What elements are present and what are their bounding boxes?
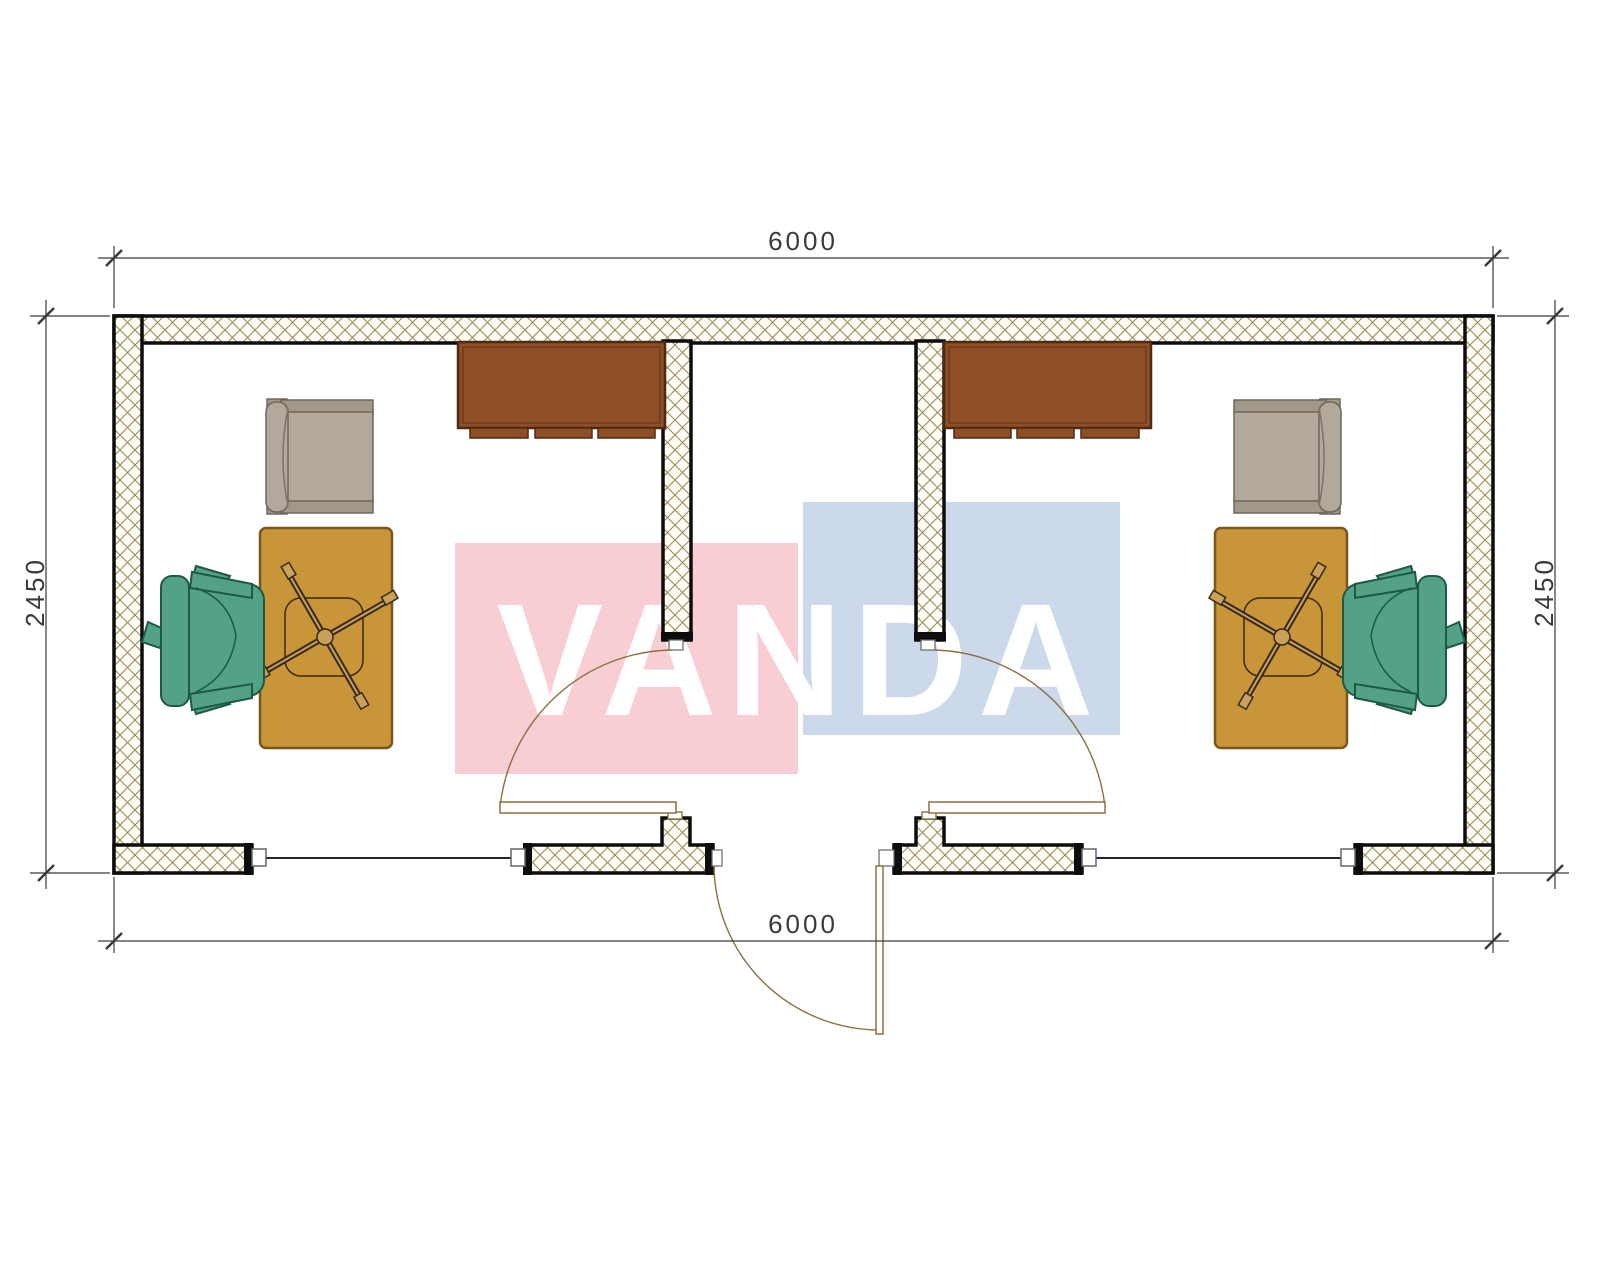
door-leaf: [500, 802, 676, 813]
dim-label-bottom: 6000: [768, 909, 838, 939]
partition-left: [663, 341, 691, 640]
cabinet-handle: [954, 428, 1011, 438]
cabinet-left: [458, 342, 665, 438]
windows: [252, 849, 1355, 866]
window-bottom-right: [1082, 849, 1355, 866]
window-jamb: [1341, 849, 1355, 866]
watermark-text: VANDA: [496, 570, 1103, 749]
window-jamb: [511, 849, 525, 866]
cabinet-right: [944, 342, 1151, 438]
window-bottom-left: [252, 849, 525, 866]
watermark: VANDA: [455, 502, 1120, 774]
entrance-door: [712, 850, 894, 1034]
cabinet-handle: [535, 428, 592, 438]
window-jamb: [1082, 849, 1096, 866]
cabinet-handle: [1081, 428, 1139, 438]
client-chair-right: [1234, 399, 1341, 514]
door-jamb: [879, 850, 894, 866]
left-wall: [114, 316, 142, 873]
bottom-wall-left-stub: [114, 845, 252, 873]
dim-label-right: 2450: [1529, 557, 1559, 627]
floor-plan-drawing: VANDA: [0, 0, 1600, 1280]
door-jamb: [712, 850, 722, 866]
client-chair-left: [266, 399, 373, 514]
dim-label-left: 2450: [20, 557, 50, 627]
cabinet-handle: [470, 428, 528, 438]
bottom-wall-left-door-segment: [525, 818, 713, 873]
right-wall: [1465, 316, 1493, 873]
bottom-wall-right-door-segment: [894, 818, 1082, 873]
top-wall: [114, 316, 1493, 343]
door-leaf: [929, 802, 1105, 813]
door-jamb: [921, 640, 935, 650]
executive-chair-right: [1343, 566, 1465, 714]
bottom-wall-right-stub: [1355, 845, 1493, 873]
dim-label-top: 6000: [768, 226, 838, 256]
door-leaf: [876, 866, 883, 1034]
cabinet-handle: [1017, 428, 1074, 438]
door-jamb: [669, 640, 683, 650]
desk-left: [251, 528, 400, 748]
partition-right: [916, 341, 944, 640]
floor-plan-canvas: VANDA: [0, 0, 1600, 1280]
door-swing-arc: [714, 866, 877, 1030]
window-jamb: [252, 849, 266, 866]
desk-right: [1207, 528, 1356, 748]
executive-chair-left: [142, 566, 264, 714]
cabinet-handle: [598, 428, 655, 438]
